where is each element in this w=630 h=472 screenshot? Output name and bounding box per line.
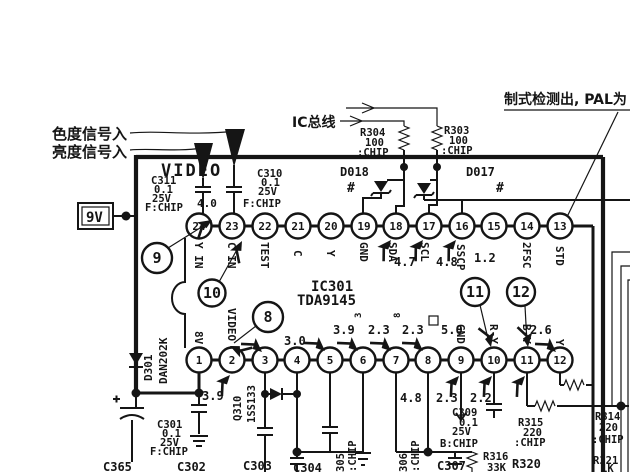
label-d018: D018: [340, 165, 369, 179]
schematic-drawing: IC301 TDA9145 24 23 22 21 20 19 18 17 16…: [0, 0, 630, 472]
label-r315: R315 220 :CHIP: [514, 417, 546, 449]
label-r314: R314 220 :CHIP: [592, 411, 624, 446]
svg-text:305: 305: [335, 453, 347, 472]
svg-text:F:CHIP: F:CHIP: [150, 446, 188, 458]
svg-text:8: 8: [425, 354, 432, 367]
diode-d301-symbol: [129, 353, 143, 367]
pin-3: 3: [253, 348, 278, 373]
svg-text::CHIP: :CHIP: [410, 440, 422, 472]
capacitor-c303-symbol: [257, 428, 273, 435]
svg-text::CHIP: :CHIP: [357, 147, 389, 159]
resistor-r314-symbol: [564, 380, 584, 390]
svg-text:D301: D301: [142, 354, 155, 381]
svg-text:1.2: 1.2: [474, 251, 496, 265]
svg-text:306: 306: [398, 453, 410, 472]
svg-text:19: 19: [357, 220, 370, 233]
svg-text:3: 3: [262, 354, 269, 367]
svg-text::CHIP: :CHIP: [347, 440, 359, 472]
svg-text:3.9: 3.9: [202, 389, 224, 403]
svg-text::CHIP: :CHIP: [441, 145, 473, 157]
pin-20: 20: [319, 214, 344, 239]
svg-text:9: 9: [152, 249, 161, 267]
label-r303: R303 100 :CHIP: [441, 125, 473, 157]
luma-in-label: 亮度信号入: [52, 143, 127, 161]
svg-text:10: 10: [487, 354, 500, 367]
svg-text:7: 7: [393, 354, 400, 367]
svg-text:33K: 33K: [487, 462, 507, 472]
label-c365: C365: [103, 460, 132, 472]
svg-text:18: 18: [389, 220, 402, 233]
label-c306: 306 :CHIP: [398, 440, 422, 472]
label-d017: D017: [466, 165, 495, 179]
pin-21: 21: [286, 214, 311, 239]
pin-18: 18: [384, 214, 409, 239]
stray-mark-8: 8: [393, 313, 403, 318]
svg-text:23: 23: [225, 220, 238, 233]
svg-text:16: 16: [455, 220, 469, 233]
svg-text:2.3: 2.3: [402, 323, 424, 337]
svg-text:GND: GND: [357, 242, 370, 262]
diode-d017-symbol: [414, 183, 434, 198]
label-r316: R316 33K: [483, 451, 508, 472]
svg-text:3.9: 3.9: [333, 323, 355, 337]
label-c302: C302: [177, 460, 206, 472]
svg-text:22: 22: [258, 220, 271, 233]
label-r320: R320: [512, 457, 541, 471]
svg-text:Y IN: Y IN: [192, 242, 205, 269]
svg-text:25V: 25V: [258, 186, 278, 198]
mid-cap-value: 4.0: [197, 197, 217, 210]
svg-text:F:CHIP: F:CHIP: [243, 198, 281, 210]
svg-text:B:CHIP: B:CHIP: [440, 438, 478, 450]
pin-6: 6: [351, 348, 376, 373]
svg-text:4: 4: [294, 354, 301, 367]
svg-text:8: 8: [263, 308, 272, 326]
svg-text:13: 13: [553, 220, 566, 233]
pin-1: 1: [187, 348, 212, 373]
svg-text:4.8: 4.8: [400, 391, 422, 405]
label-r321: R321 1K: [593, 455, 618, 472]
label-c307: C307: [437, 459, 466, 472]
svg-text:11: 11: [466, 283, 484, 301]
std-note-label: 制式检测出, PAL为: [504, 91, 627, 108]
svg-text:1: 1: [196, 354, 203, 367]
svg-text:C: C: [291, 250, 304, 257]
label-c310: C310 0.1 25V F:CHIP: [243, 168, 282, 210]
ic-left-edge: [172, 238, 185, 348]
svg-text:1K: 1K: [601, 463, 614, 472]
ic301: IC301 TDA9145 24 23 22 21 20 19 18 17 16…: [172, 214, 573, 406]
capacitor-c310-symbol: [226, 187, 242, 192]
pin-8: 8: [416, 348, 441, 373]
svg-text:20: 20: [324, 220, 337, 233]
svg-text:8V: 8V: [192, 331, 205, 345]
pin-9: 9: [449, 348, 474, 373]
pin-23: 23: [220, 214, 245, 239]
pin-22: 22: [253, 214, 278, 239]
svg-text:15: 15: [487, 220, 500, 233]
svg-text:2.2: 2.2: [470, 391, 492, 405]
svg-text:6: 6: [360, 354, 367, 367]
svg-text:F:CHIP: F:CHIP: [145, 202, 183, 214]
pin-16: 16: [450, 214, 475, 239]
hash-left: #: [347, 181, 355, 196]
ic-part: TDA9145: [297, 293, 356, 309]
pin-5: 5: [318, 348, 343, 373]
svg-text:9V: 9V: [86, 210, 103, 226]
schematic-page: IC301 TDA9145 24 23 22 21 20 19 18 17 16…: [0, 0, 630, 472]
ic-bus-label: IC总线: [292, 114, 335, 131]
svg-text:10: 10: [203, 284, 221, 302]
resistor-r316-symbol: [467, 452, 477, 472]
supply-9v: 9V: [78, 203, 113, 229]
svg-text:3.0: 3.0: [284, 334, 306, 348]
svg-text:220: 220: [599, 422, 618, 434]
svg-text:4.7: 4.7: [394, 255, 416, 269]
svg-text:1SS133: 1SS133: [246, 385, 258, 423]
pin-7: 7: [384, 348, 409, 373]
label-c304: C304: [293, 461, 322, 472]
svg-text::CHIP: :CHIP: [514, 437, 546, 449]
pin-17: 17: [417, 214, 442, 239]
svg-text:Y: Y: [324, 250, 337, 257]
svg-text:14: 14: [520, 220, 534, 233]
svg-text:DAN202K: DAN202K: [157, 337, 170, 384]
label-d301: D301 DAN202K: [142, 337, 170, 384]
label-r304: R304 100 :CHIP: [357, 127, 389, 159]
svg-text::CHIP: :CHIP: [592, 434, 624, 446]
diode-d310-symbol: [270, 388, 282, 400]
pin-11: 11: [515, 348, 540, 373]
resistor-r315-symbol: [535, 401, 555, 411]
svg-text:2.3: 2.3: [368, 323, 390, 337]
top-pin-values: 4.7 4.8 1.2: [394, 251, 496, 269]
capacitor-c311-symbol: [195, 187, 211, 192]
pin-10: 10: [482, 348, 507, 373]
label-c303: C303: [243, 459, 272, 472]
diode-d018-symbol: [371, 181, 391, 196]
svg-text:STD: STD: [553, 246, 566, 266]
pin-14: 14: [515, 214, 540, 239]
svg-text:4.8: 4.8: [436, 255, 458, 269]
capacitor-c365-symbol: [113, 396, 144, 420]
pad-mark: [429, 316, 438, 325]
label-c301: C301 0.1 25V F:CHIP: [150, 419, 188, 458]
svg-text:17: 17: [422, 220, 435, 233]
callout-10: 10: [199, 238, 250, 306]
svg-text:2.6: 2.6: [530, 323, 552, 337]
resistor-r304-symbol: [399, 126, 409, 150]
label-c309: C309 0.1 25V B:CHIP: [440, 407, 478, 450]
label-d310: Q310 1SS133: [232, 385, 258, 423]
chroma-input-arrow: [225, 129, 245, 167]
svg-text:2: 2: [229, 354, 236, 367]
pin-12: 12: [548, 348, 573, 373]
svg-text:Y: Y: [553, 339, 566, 346]
svg-text:21: 21: [291, 220, 305, 233]
svg-text:VIDEO: VIDEO: [225, 308, 238, 341]
svg-text:12: 12: [512, 283, 530, 301]
pin-19: 19: [352, 214, 377, 239]
svg-text:25V: 25V: [452, 426, 472, 438]
chroma-in-label: 色度信号入: [52, 125, 127, 143]
svg-text:Q310: Q310: [232, 396, 244, 421]
svg-text:5: 5: [327, 354, 334, 367]
capacitor-c305-symbol: [322, 427, 338, 433]
svg-text:5.0: 5.0: [441, 323, 463, 337]
svg-text:2FSC: 2FSC: [520, 242, 533, 269]
stray-mark-3: 3: [354, 313, 364, 318]
pin-15: 15: [482, 214, 507, 239]
pin-13: 13: [548, 214, 573, 239]
label-c305: 305 :CHIP: [335, 440, 359, 472]
pin-4: 4: [285, 348, 310, 373]
svg-text:11: 11: [520, 354, 534, 367]
svg-text:TEST: TEST: [258, 242, 271, 269]
svg-text:2.3: 2.3: [436, 391, 458, 405]
hash-right: #: [496, 181, 504, 196]
svg-text:12: 12: [553, 354, 566, 367]
svg-text:9: 9: [458, 354, 465, 367]
